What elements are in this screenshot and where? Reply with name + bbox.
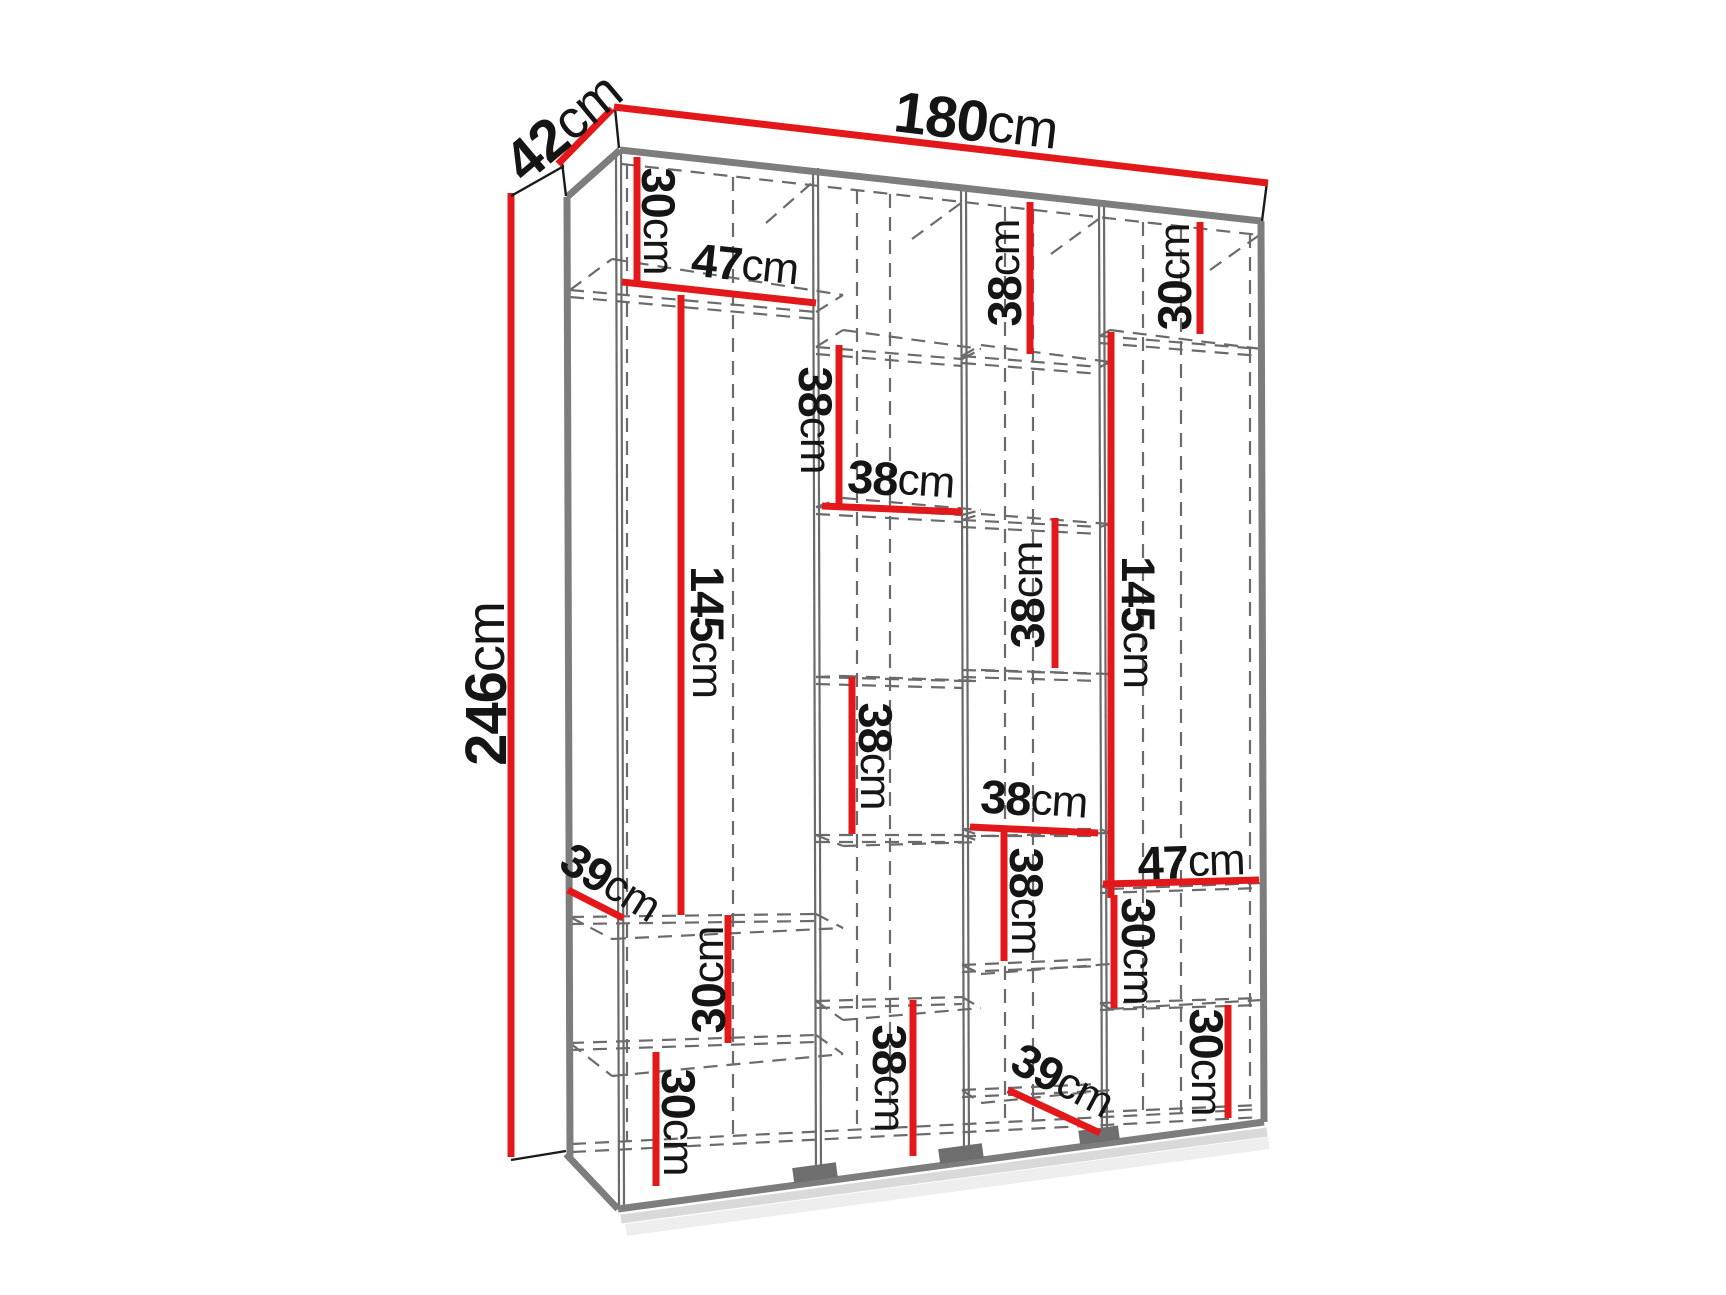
diagram-canvas: 180cm42cm246cm30cm47cm145cm39cm30cm30cm3… [0,0,1726,1295]
dashed-structure-line [1100,888,1261,893]
dashed-structure-line [766,181,814,223]
dim-label-col1-bottom-30cm: 30cm [653,1069,706,1176]
dim-label-col4-mid-30cm: 30cm [1113,898,1166,1005]
divider-line [966,185,969,1162]
dim-label-col3-38cm-v: 38cm [1001,848,1054,955]
dim-label-col3-mid-38cm: 38cm [1001,542,1054,649]
divider-line [1099,200,1102,1144]
dim-label-col4-bottom-30cm: 30cm [1181,1009,1234,1116]
dim-tick-height-246cm [511,1151,566,1160]
dashed-structure-line [816,330,843,347]
dim-label-col4-145cm: 145cm [1113,556,1166,688]
dashed-structure-line [962,527,1100,534]
dashed-structure-line [912,203,961,239]
carcass-edge [566,1154,618,1209]
dim-label-col3-38cm-h: 38cm [979,769,1089,829]
dashed-structure-line [962,677,1100,681]
dim-label-col2-bottom-38cm: 38cm [864,1025,917,1132]
dim-label-col1-145cm: 145cm [682,566,735,698]
carcass-edge [567,197,570,1156]
dashed-structure-line [962,959,1100,965]
dashed-structure-line [816,295,843,312]
dim-label-col2-38cm-h: 38cm [846,449,956,509]
dashed-structure-line [570,1035,816,1043]
dim-label-col1-47cm: 47cm [689,232,801,296]
dashed-structure-line [570,1042,816,1050]
dashed-structure-line [570,259,612,290]
dim-label-col3-top-38cm: 38cm [978,220,1031,327]
dashed-structure-line [962,997,981,1008]
dashed-structure-line [843,330,981,349]
divider-line [818,168,821,1181]
dim-label-col4-47cm: 47cm [1137,833,1246,890]
dashed-structure-line [1051,218,1100,254]
wardrobe-dimension-diagram: 180cm42cm246cm30cm47cm145cm39cm30cm30cm3… [0,0,1726,1295]
divider-line [1104,200,1107,1143]
divider-line [813,168,816,1182]
dim-label-col4-top-30cm: 30cm [1148,224,1201,331]
dashed-structure-line [570,921,816,924]
dim-label-col2-38cm-v1: 38cm [790,367,843,474]
dim-label-col2-38cm-v2: 38cm [850,703,903,810]
dashed-structure-line [570,914,816,917]
dashed-structure-line [612,1054,843,1076]
dashed-structure-line [570,917,612,939]
carcass-edge [1261,221,1264,1122]
dim-label-height-246cm: 246cm [454,602,519,766]
dashed-structure-line [962,510,981,515]
divider-line [961,185,964,1163]
dashed-structure-line [981,345,1110,362]
dashed-structure-line [981,514,1110,524]
dim-label-col1-mid-30cm: 30cm [682,927,735,1034]
carcass-edge [618,1122,1264,1209]
dim-label-col1-top-30cm: 30cm [633,168,686,275]
